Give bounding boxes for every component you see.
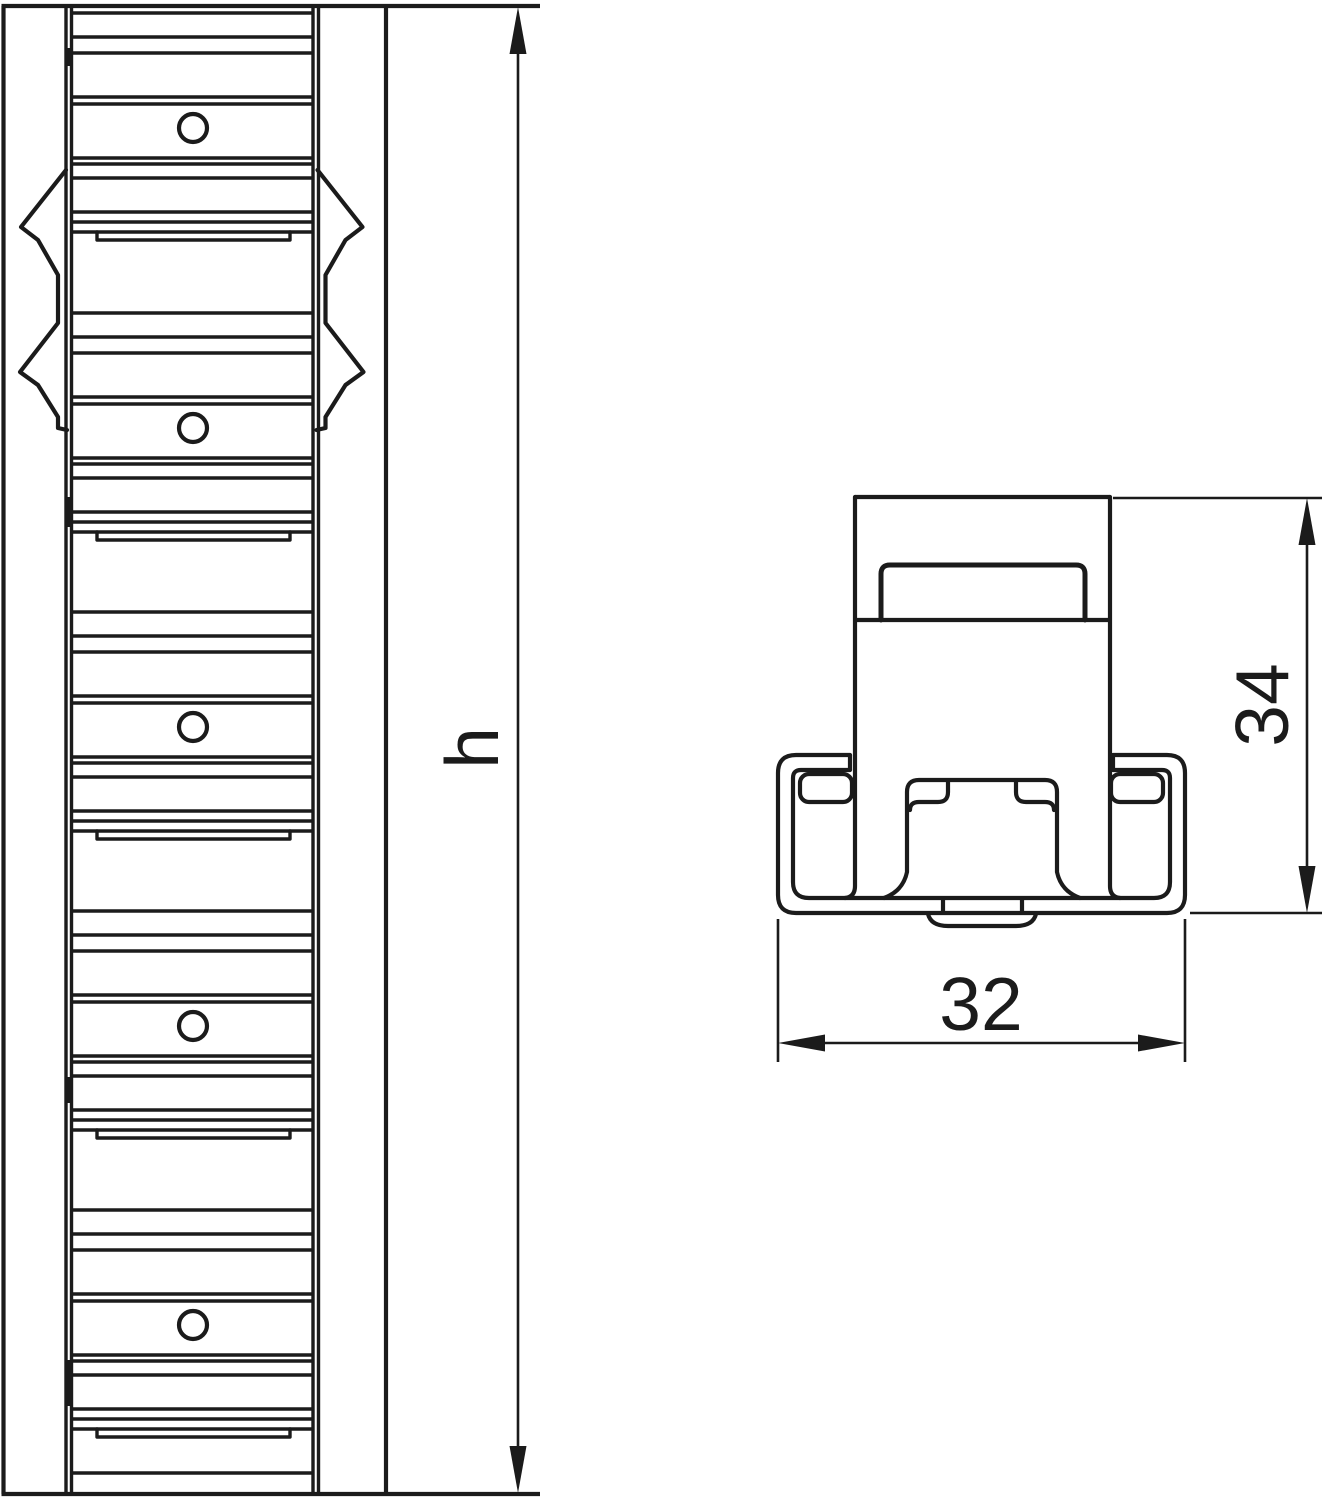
width-dimension-32: 32	[778, 919, 1185, 1062]
technical-drawing: h 34	[0, 0, 1326, 1500]
front-view: h	[2, 6, 541, 1494]
drawing-canvas: h 34	[0, 0, 1326, 1500]
arrow-34-down	[1299, 866, 1316, 913]
h-arrow-up	[510, 7, 527, 54]
arrow-32-right	[1138, 1035, 1185, 1052]
h-arrow-down	[510, 1446, 527, 1493]
channel-inner-contour	[793, 770, 1170, 898]
lip-hook-left	[800, 774, 852, 802]
section-view: 34 32	[778, 497, 1322, 1062]
arrow-32-left	[778, 1035, 825, 1052]
height-dimension-34: 34	[1113, 498, 1322, 913]
clamp-body	[884, 780, 1080, 898]
bottom-boss	[928, 914, 1036, 926]
box-inner-window	[881, 565, 1085, 620]
h-dimension: h	[430, 7, 527, 1493]
width-dimension-label: 32	[939, 962, 1022, 1046]
arrow-34-up	[1299, 498, 1316, 545]
clamp-step-left	[910, 781, 948, 810]
height-dimension-label: 34	[1220, 663, 1304, 746]
box-right-wall	[1110, 497, 1120, 898]
box-left-wall	[845, 497, 855, 898]
h-dimension-label: h	[430, 727, 514, 769]
clamp-step-right	[1016, 781, 1054, 810]
lip-hook-right	[1111, 774, 1163, 802]
